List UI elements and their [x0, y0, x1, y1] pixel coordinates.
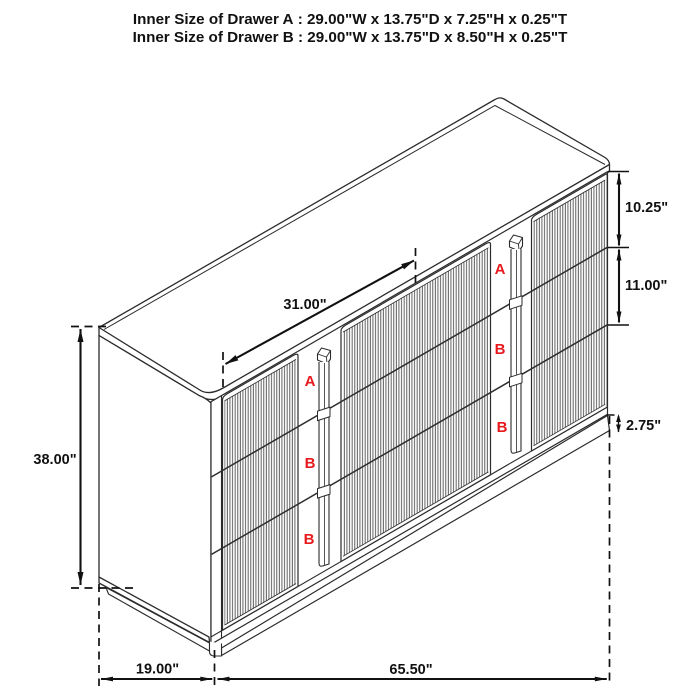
svg-text:B: B — [497, 419, 508, 436]
svg-text:31.00": 31.00" — [283, 297, 326, 313]
svg-text:2.75": 2.75" — [626, 418, 661, 434]
svg-text:B: B — [305, 455, 316, 472]
svg-text:B: B — [304, 531, 315, 548]
svg-text:B: B — [495, 341, 506, 358]
svg-text:A: A — [305, 373, 316, 390]
svg-text:38.00": 38.00" — [33, 452, 76, 468]
svg-text:A: A — [495, 261, 506, 278]
svg-text:10.25": 10.25" — [625, 200, 668, 216]
svg-text:19.00": 19.00" — [136, 662, 179, 678]
svg-text:65.50": 65.50" — [389, 662, 432, 678]
svg-text:11.00": 11.00" — [625, 278, 667, 294]
